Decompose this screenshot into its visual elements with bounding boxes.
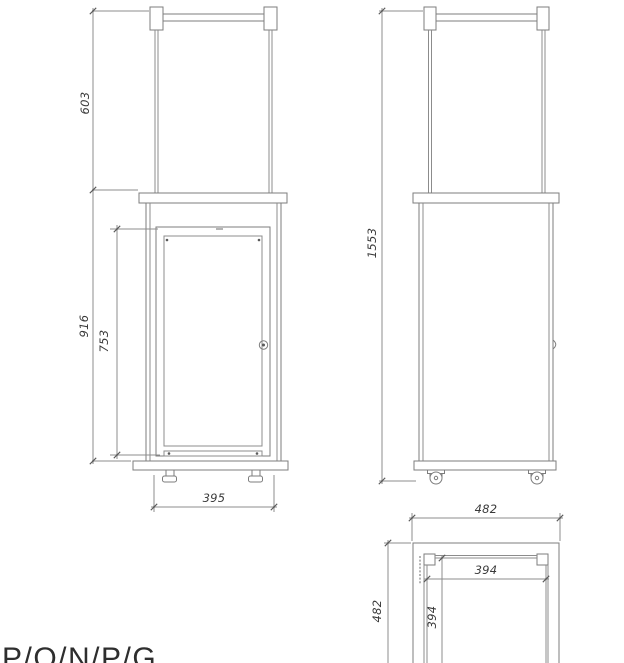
caster-left — [428, 470, 445, 484]
front-door-glass — [164, 236, 262, 446]
dim-label-482-depth: 482 — [370, 600, 384, 623]
dim-label-394-width: 394 — [475, 563, 498, 577]
dim-dot — [92, 460, 94, 462]
top-post-left — [424, 554, 435, 565]
dim-label-394-depth: 394 — [425, 606, 439, 629]
front-bar-cap-left — [150, 7, 163, 30]
dim-top-inner-depth: 394 — [425, 555, 445, 663]
side-body — [419, 203, 553, 461]
heater-dimension-drawing: 603 916 753 395 — [0, 0, 624, 663]
top-post-right — [537, 554, 548, 565]
caster-right — [529, 470, 546, 484]
dim-label-482-width: 482 — [475, 502, 498, 516]
front-view: 603 916 753 395 — [77, 7, 288, 512]
caster-wheel-right — [531, 472, 543, 484]
dim-dot — [559, 517, 561, 519]
front-foot-right — [249, 470, 263, 482]
side-top-bar-assembly — [424, 7, 549, 193]
dim-dot — [153, 506, 155, 508]
top-view: 482 482 394 394 — [370, 502, 563, 663]
strip-screw-left — [168, 452, 171, 455]
caster-wheel-left — [430, 472, 442, 484]
front-bar-cap-right — [264, 7, 277, 30]
side-view: 1553 — [365, 7, 559, 484]
front-foot-left — [163, 470, 177, 482]
dim-top-inner-width: 394 — [424, 563, 549, 582]
dim-dot — [116, 228, 118, 230]
dim-label-753: 753 — [97, 330, 111, 353]
dim-front-window-height: 753 — [97, 225, 160, 459]
glass-screw-top-left — [166, 239, 169, 242]
side-top-plate — [413, 193, 559, 203]
dim-label-1553: 1553 — [365, 228, 379, 258]
dim-side-total-height: 1553 — [365, 8, 423, 484]
dim-top-overall-depth: 482 — [370, 540, 411, 663]
dim-label-395: 395 — [203, 491, 226, 505]
front-bottom-strip — [164, 451, 262, 456]
front-top-plate — [139, 193, 287, 203]
dim-dot — [441, 557, 443, 559]
glass-screw-top-right — [258, 239, 261, 242]
dim-dot — [92, 189, 94, 191]
dim-top-overall-width: 482 — [409, 502, 563, 541]
foot-stem-left — [166, 470, 174, 476]
dim-label-603: 603 — [78, 92, 92, 115]
dim-dot — [426, 578, 428, 580]
front-cabinet — [133, 193, 288, 482]
side-cabinet — [413, 193, 559, 484]
side-bar-cap-right — [537, 7, 549, 30]
dim-dot — [381, 480, 383, 482]
side-bar-cap-left — [424, 7, 436, 30]
front-body — [146, 203, 281, 461]
front-door-frame — [156, 227, 270, 456]
dim-dot — [411, 517, 413, 519]
dim-label-916: 916 — [77, 315, 91, 338]
dim-dot — [92, 10, 94, 12]
front-top-bar — [163, 14, 264, 21]
front-top-bar-assembly — [150, 7, 277, 193]
dim-dot — [545, 578, 547, 580]
foot-pad-left — [163, 476, 177, 482]
dim-dot — [116, 454, 118, 456]
front-base-plate — [133, 461, 288, 470]
model-code-text: P/O/N/P/G — [2, 642, 157, 663]
foot-pad-right — [249, 476, 263, 482]
technical-drawing-page: 603 916 753 395 — [0, 0, 624, 663]
side-base-plate — [414, 461, 556, 470]
foot-stem-right — [252, 470, 260, 476]
side-top-bar — [436, 14, 537, 21]
dim-dot — [381, 10, 383, 12]
dim-front-top-section: 603 — [78, 8, 149, 464]
dim-dot — [273, 506, 275, 508]
strip-screw-right — [256, 452, 259, 455]
door-knob-center — [262, 344, 265, 347]
dim-dot — [387, 542, 389, 544]
